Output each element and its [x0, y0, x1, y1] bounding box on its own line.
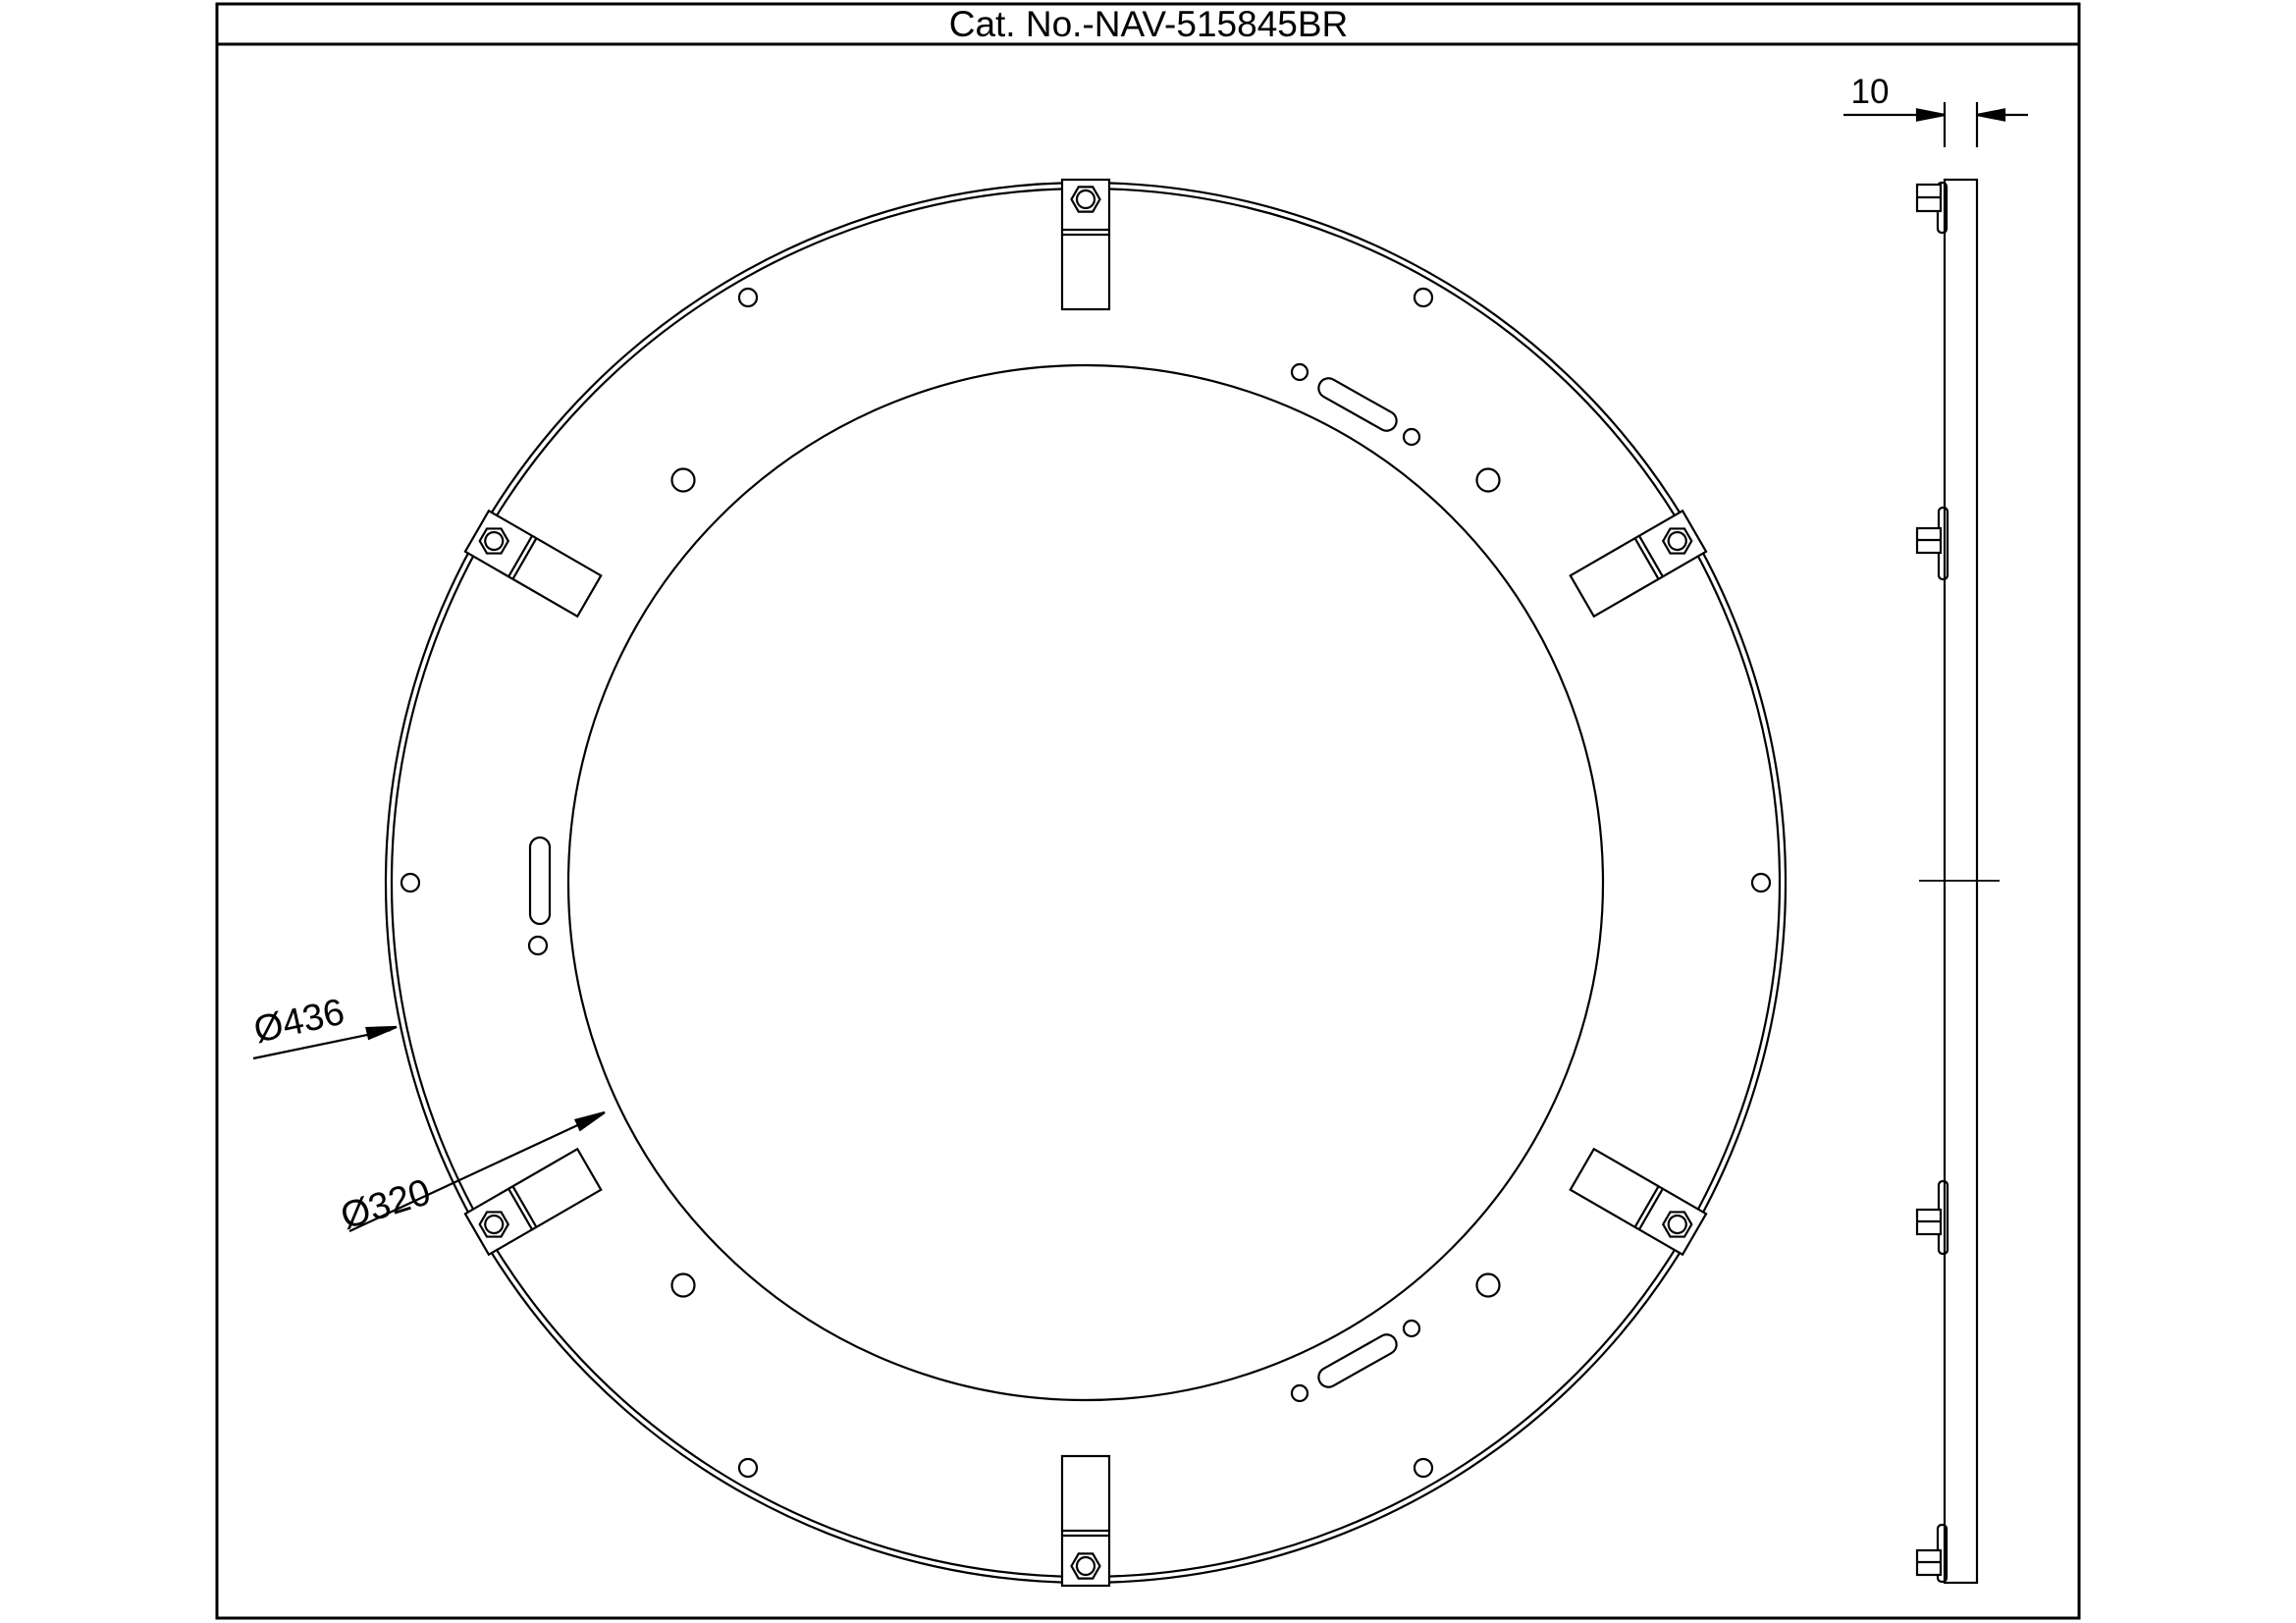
slot-cluster-left — [529, 838, 550, 954]
mounting-tab-lower-left — [465, 1149, 601, 1255]
profile-clip-top — [1917, 183, 1947, 233]
slot-pilot-hole — [529, 937, 547, 954]
thickness-label: 10 — [1851, 73, 1890, 111]
mid-hole — [672, 469, 695, 492]
mounting-tab-upper-right — [1571, 511, 1706, 617]
inner-diameter-label: Ø320 — [336, 1171, 435, 1237]
outer-hole — [1752, 874, 1770, 892]
mounting-tab-bottom — [1062, 1456, 1109, 1586]
outer-hole — [401, 874, 419, 892]
slot-pilot-hole — [1404, 429, 1419, 445]
drawing-sheet: Cat. No.-NAV-515845BR — [0, 0, 2296, 1623]
slot-pilot-hole — [1404, 1321, 1419, 1336]
profile-clip-lower — [1917, 1181, 1948, 1254]
outer-hole — [739, 289, 757, 306]
mounting-tab-upper-left — [465, 511, 601, 617]
side-view — [1843, 102, 2028, 1583]
outer-hole — [1415, 289, 1432, 306]
mid-hole — [1477, 1274, 1500, 1297]
inner-circle — [568, 365, 1603, 1400]
outer-hole — [1415, 1459, 1432, 1477]
dimension-arrowhead — [1977, 110, 2004, 121]
front-view — [253, 180, 1786, 1586]
slot-cluster-lower-right — [1292, 1321, 1419, 1401]
leader-arrowhead — [367, 1027, 398, 1039]
leader-arrowhead — [576, 1112, 606, 1130]
mounting-slot — [530, 838, 550, 924]
slot-pilot-hole — [1292, 1385, 1308, 1401]
drawing-frame — [217, 4, 2079, 1618]
frame-border — [217, 4, 2079, 1618]
mounting-tab-lower-right — [1571, 1149, 1706, 1255]
outer-circle-inner-line — [392, 189, 1780, 1577]
mid-hole — [672, 1274, 695, 1297]
technical-drawing: Cat. No.-NAV-515845BR — [0, 0, 2296, 1623]
dimension-arrowhead — [1917, 110, 1945, 121]
slot-pilot-hole — [1292, 364, 1308, 380]
catalog-number-title: Cat. No.-NAV-515845BR — [949, 4, 1349, 44]
profile-clip-bottom — [1917, 1525, 1947, 1582]
outer-circle — [386, 183, 1786, 1583]
mounting-tab-top — [1062, 180, 1109, 309]
slot-cluster-upper-right — [1292, 364, 1419, 445]
mid-hole — [1477, 469, 1500, 492]
profile-clip-upper — [1917, 508, 1948, 579]
outer-hole — [739, 1459, 757, 1477]
